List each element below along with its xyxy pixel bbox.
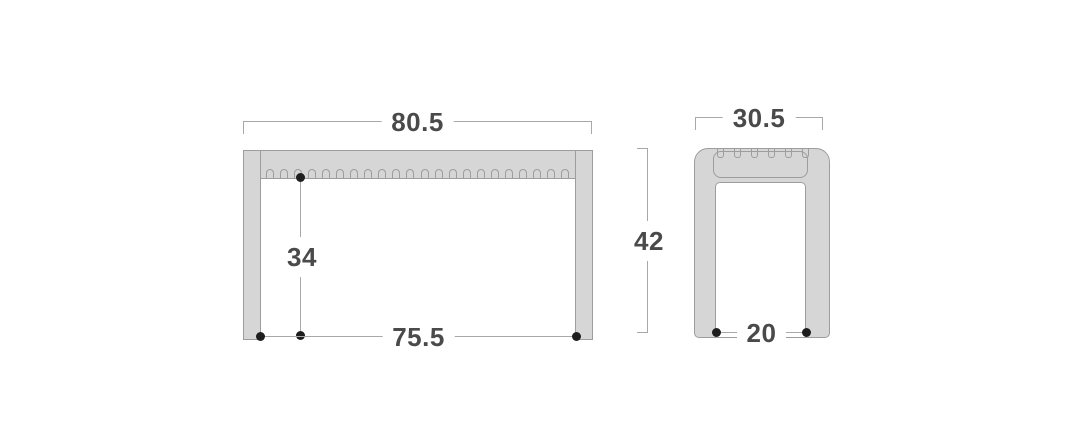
slat-notch xyxy=(519,169,527,179)
dim-dot-right xyxy=(802,328,811,337)
slat-notch xyxy=(378,169,386,179)
dim-label-height-under-top: 34 xyxy=(283,237,321,277)
technical-drawing-canvas: 80.5 34 75.5 30.5 xyxy=(0,0,1080,432)
side-slat-notch-row xyxy=(717,149,809,158)
dim-tick-left xyxy=(695,117,696,130)
slat-notch xyxy=(561,169,569,179)
slat-notch xyxy=(406,169,414,179)
dim-dot-top xyxy=(296,173,305,182)
dim-label-inner-width: 75.5 xyxy=(382,324,455,350)
slat-notch xyxy=(266,169,274,179)
slat-notch xyxy=(322,169,330,179)
dim-dot-left xyxy=(256,332,265,341)
dim-label-overall-depth: 30.5 xyxy=(723,105,796,131)
dim-label-overall-width: 80.5 xyxy=(381,109,454,135)
slat-notch xyxy=(717,149,724,158)
slat-notch xyxy=(449,169,457,179)
dim-tick-right xyxy=(822,117,823,130)
slat-notch xyxy=(421,169,429,179)
slat-notch xyxy=(350,169,358,179)
side-body xyxy=(694,148,830,338)
slat-notch xyxy=(280,169,288,179)
side-leg-cutout xyxy=(715,182,806,338)
slat-notch xyxy=(768,149,775,158)
dim-inner-depth: 20 xyxy=(715,332,808,333)
dim-overall-width: 80.5 xyxy=(243,121,592,122)
slat-notch xyxy=(491,169,499,179)
slat-notch xyxy=(802,149,809,158)
dim-tick-bottom xyxy=(637,332,648,333)
front-leg-right xyxy=(575,150,593,340)
front-slat-notch-row xyxy=(266,169,569,179)
dim-dot-right xyxy=(572,332,581,341)
slat-notch xyxy=(435,169,443,179)
dim-label-overall-height: 42 xyxy=(630,221,668,261)
dim-label-inner-depth: 20 xyxy=(737,320,787,346)
slat-notch xyxy=(463,169,471,179)
dim-tick-right xyxy=(591,121,592,134)
slat-notch xyxy=(336,169,344,179)
dim-overall-depth: 30.5 xyxy=(695,117,823,118)
slat-notch xyxy=(505,169,513,179)
slat-notch xyxy=(533,169,541,179)
dim-dot-left xyxy=(712,328,721,337)
dim-tick-top xyxy=(637,148,648,149)
slat-notch xyxy=(392,169,400,179)
dim-inner-width: 75.5 xyxy=(259,336,578,337)
slat-notch xyxy=(785,149,792,158)
slat-notch xyxy=(751,149,758,158)
dim-tick-left xyxy=(243,121,244,134)
slat-notch xyxy=(364,169,372,179)
front-leg-left xyxy=(243,150,261,340)
dim-height-under-top: 34 xyxy=(300,177,301,336)
slat-notch xyxy=(734,149,741,158)
dim-overall-height: 42 xyxy=(647,149,648,332)
slat-notch xyxy=(547,169,555,179)
slat-notch xyxy=(477,169,485,179)
slat-notch xyxy=(308,169,316,179)
